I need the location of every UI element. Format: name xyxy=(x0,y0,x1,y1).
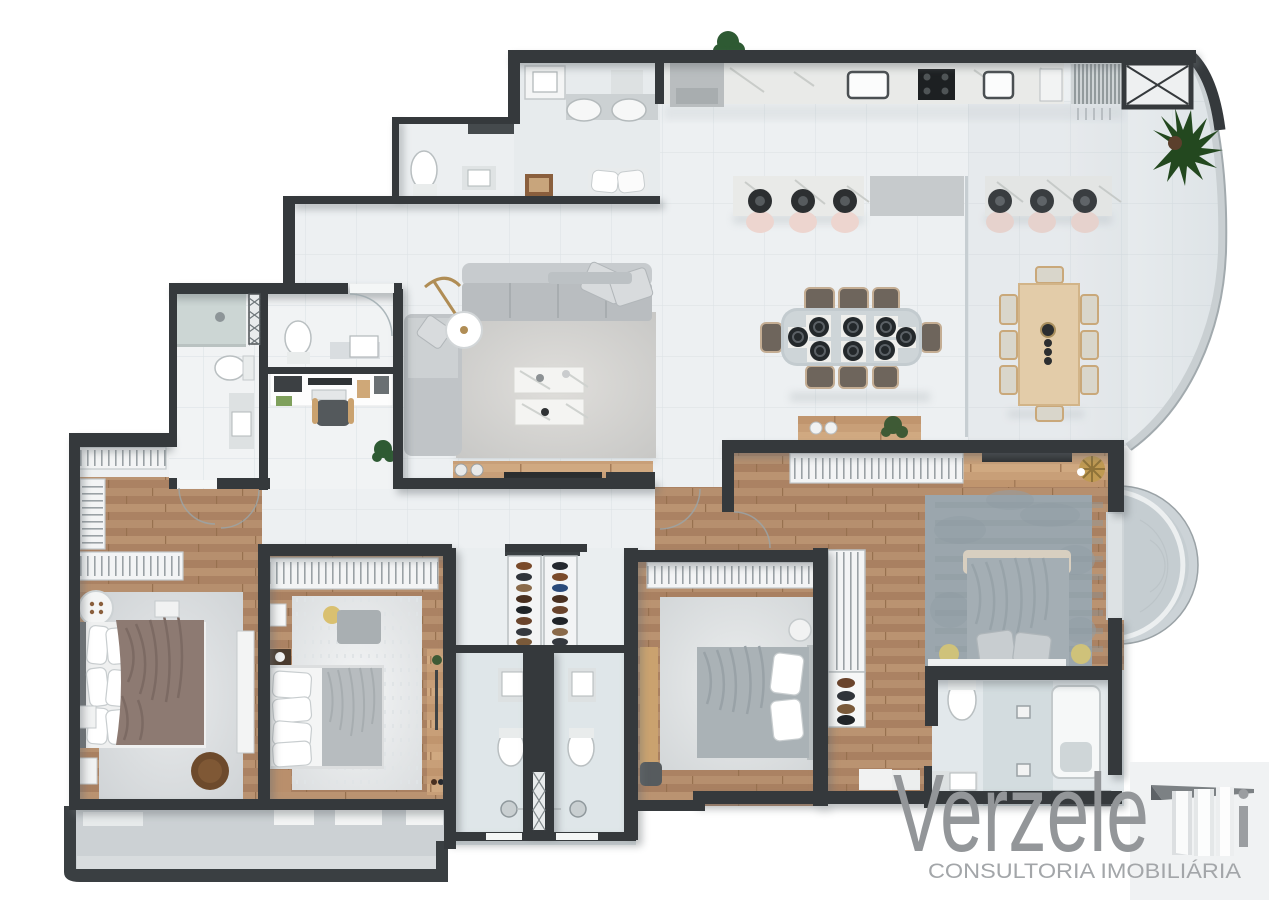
svg-text:Verzele: Verzele xyxy=(893,752,1149,875)
svg-text:CONSULTORIA IMOBILIÁRIA: CONSULTORIA IMOBILIÁRIA xyxy=(928,860,1241,883)
